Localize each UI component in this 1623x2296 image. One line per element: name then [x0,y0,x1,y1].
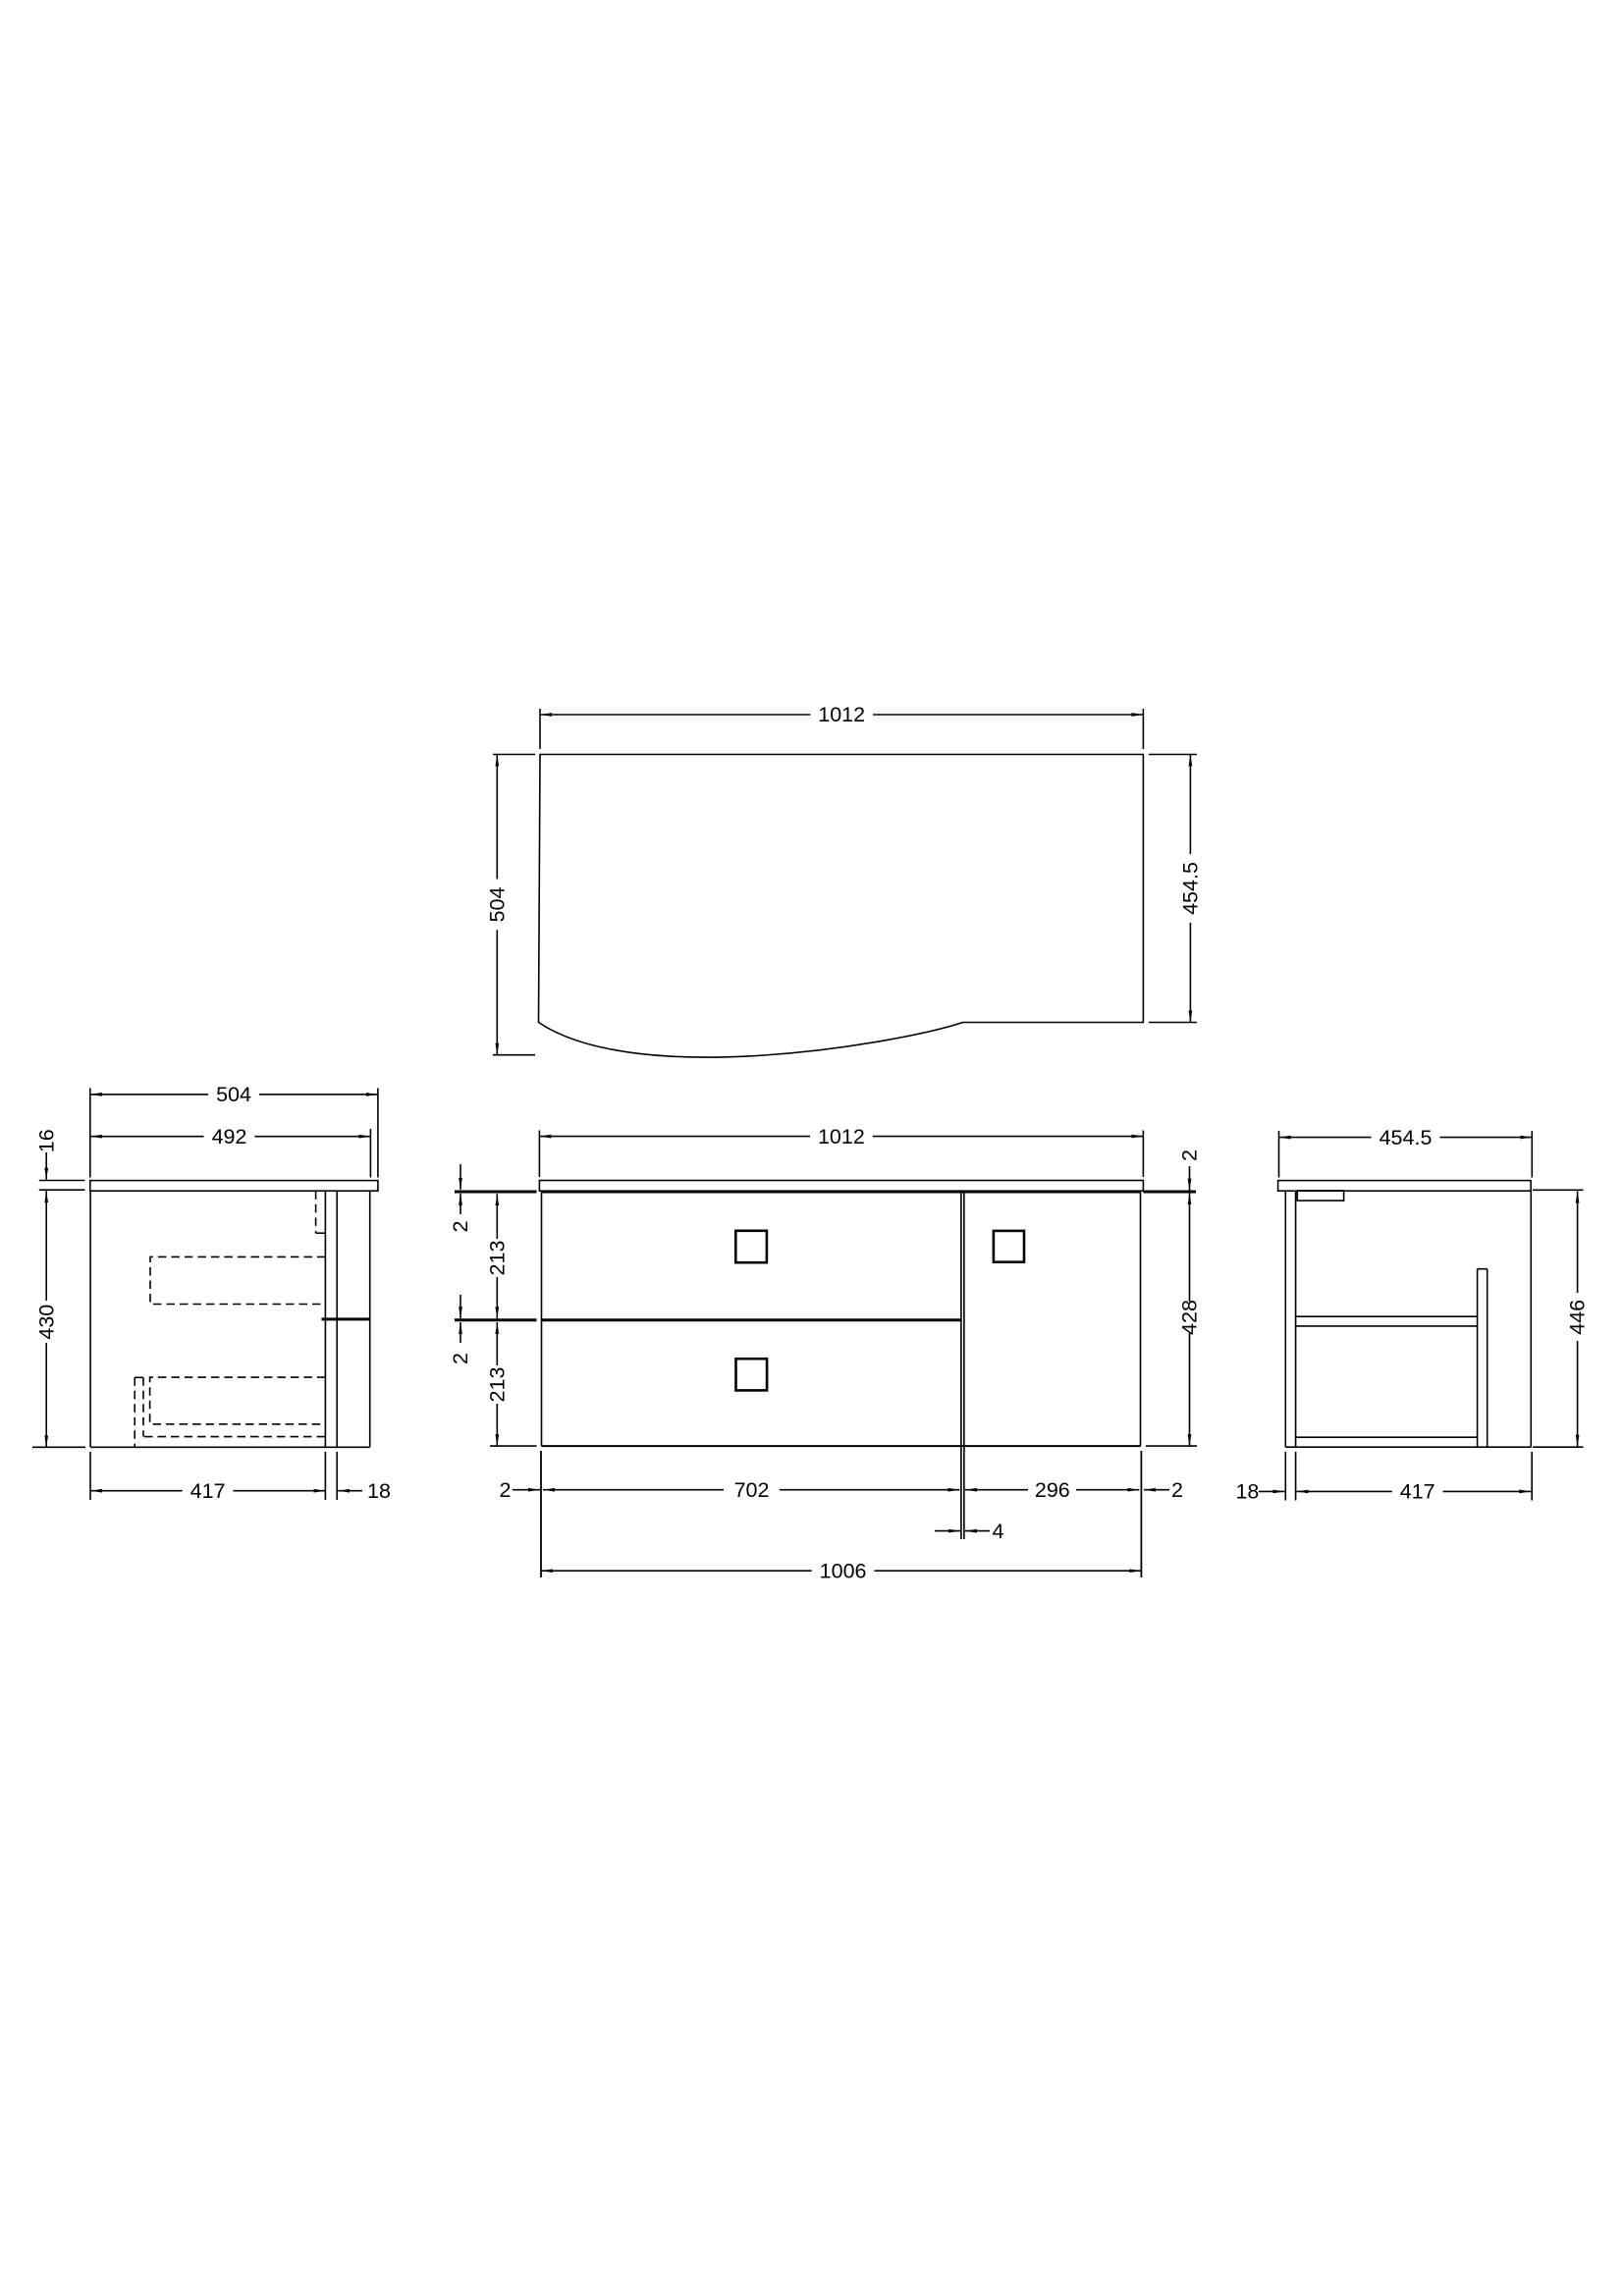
svg-text:454.5: 454.5 [1380,1126,1433,1149]
svg-text:454.5: 454.5 [1179,862,1203,915]
svg-text:18: 18 [1235,1480,1259,1504]
svg-text:296: 296 [1035,1478,1070,1502]
svg-text:702: 702 [734,1478,770,1502]
svg-text:213: 213 [486,1241,510,1276]
svg-text:1012: 1012 [818,703,865,726]
svg-text:2: 2 [1178,1149,1202,1161]
svg-text:504: 504 [486,887,510,923]
svg-text:492: 492 [212,1125,247,1148]
svg-text:2: 2 [449,1221,472,1233]
svg-text:428: 428 [1178,1300,1202,1335]
svg-text:417: 417 [190,1479,226,1503]
svg-text:2: 2 [449,1353,472,1364]
svg-text:504: 504 [216,1083,251,1106]
svg-text:213: 213 [486,1367,510,1403]
svg-text:2: 2 [1171,1478,1183,1502]
svg-text:1006: 1006 [820,1559,867,1582]
svg-text:2: 2 [500,1478,512,1502]
svg-text:16: 16 [34,1129,58,1152]
svg-text:430: 430 [34,1305,58,1340]
svg-text:417: 417 [1400,1480,1435,1504]
svg-text:1012: 1012 [818,1125,865,1148]
svg-text:18: 18 [367,1479,391,1503]
svg-text:4: 4 [993,1520,1004,1543]
svg-text:446: 446 [1565,1300,1589,1335]
